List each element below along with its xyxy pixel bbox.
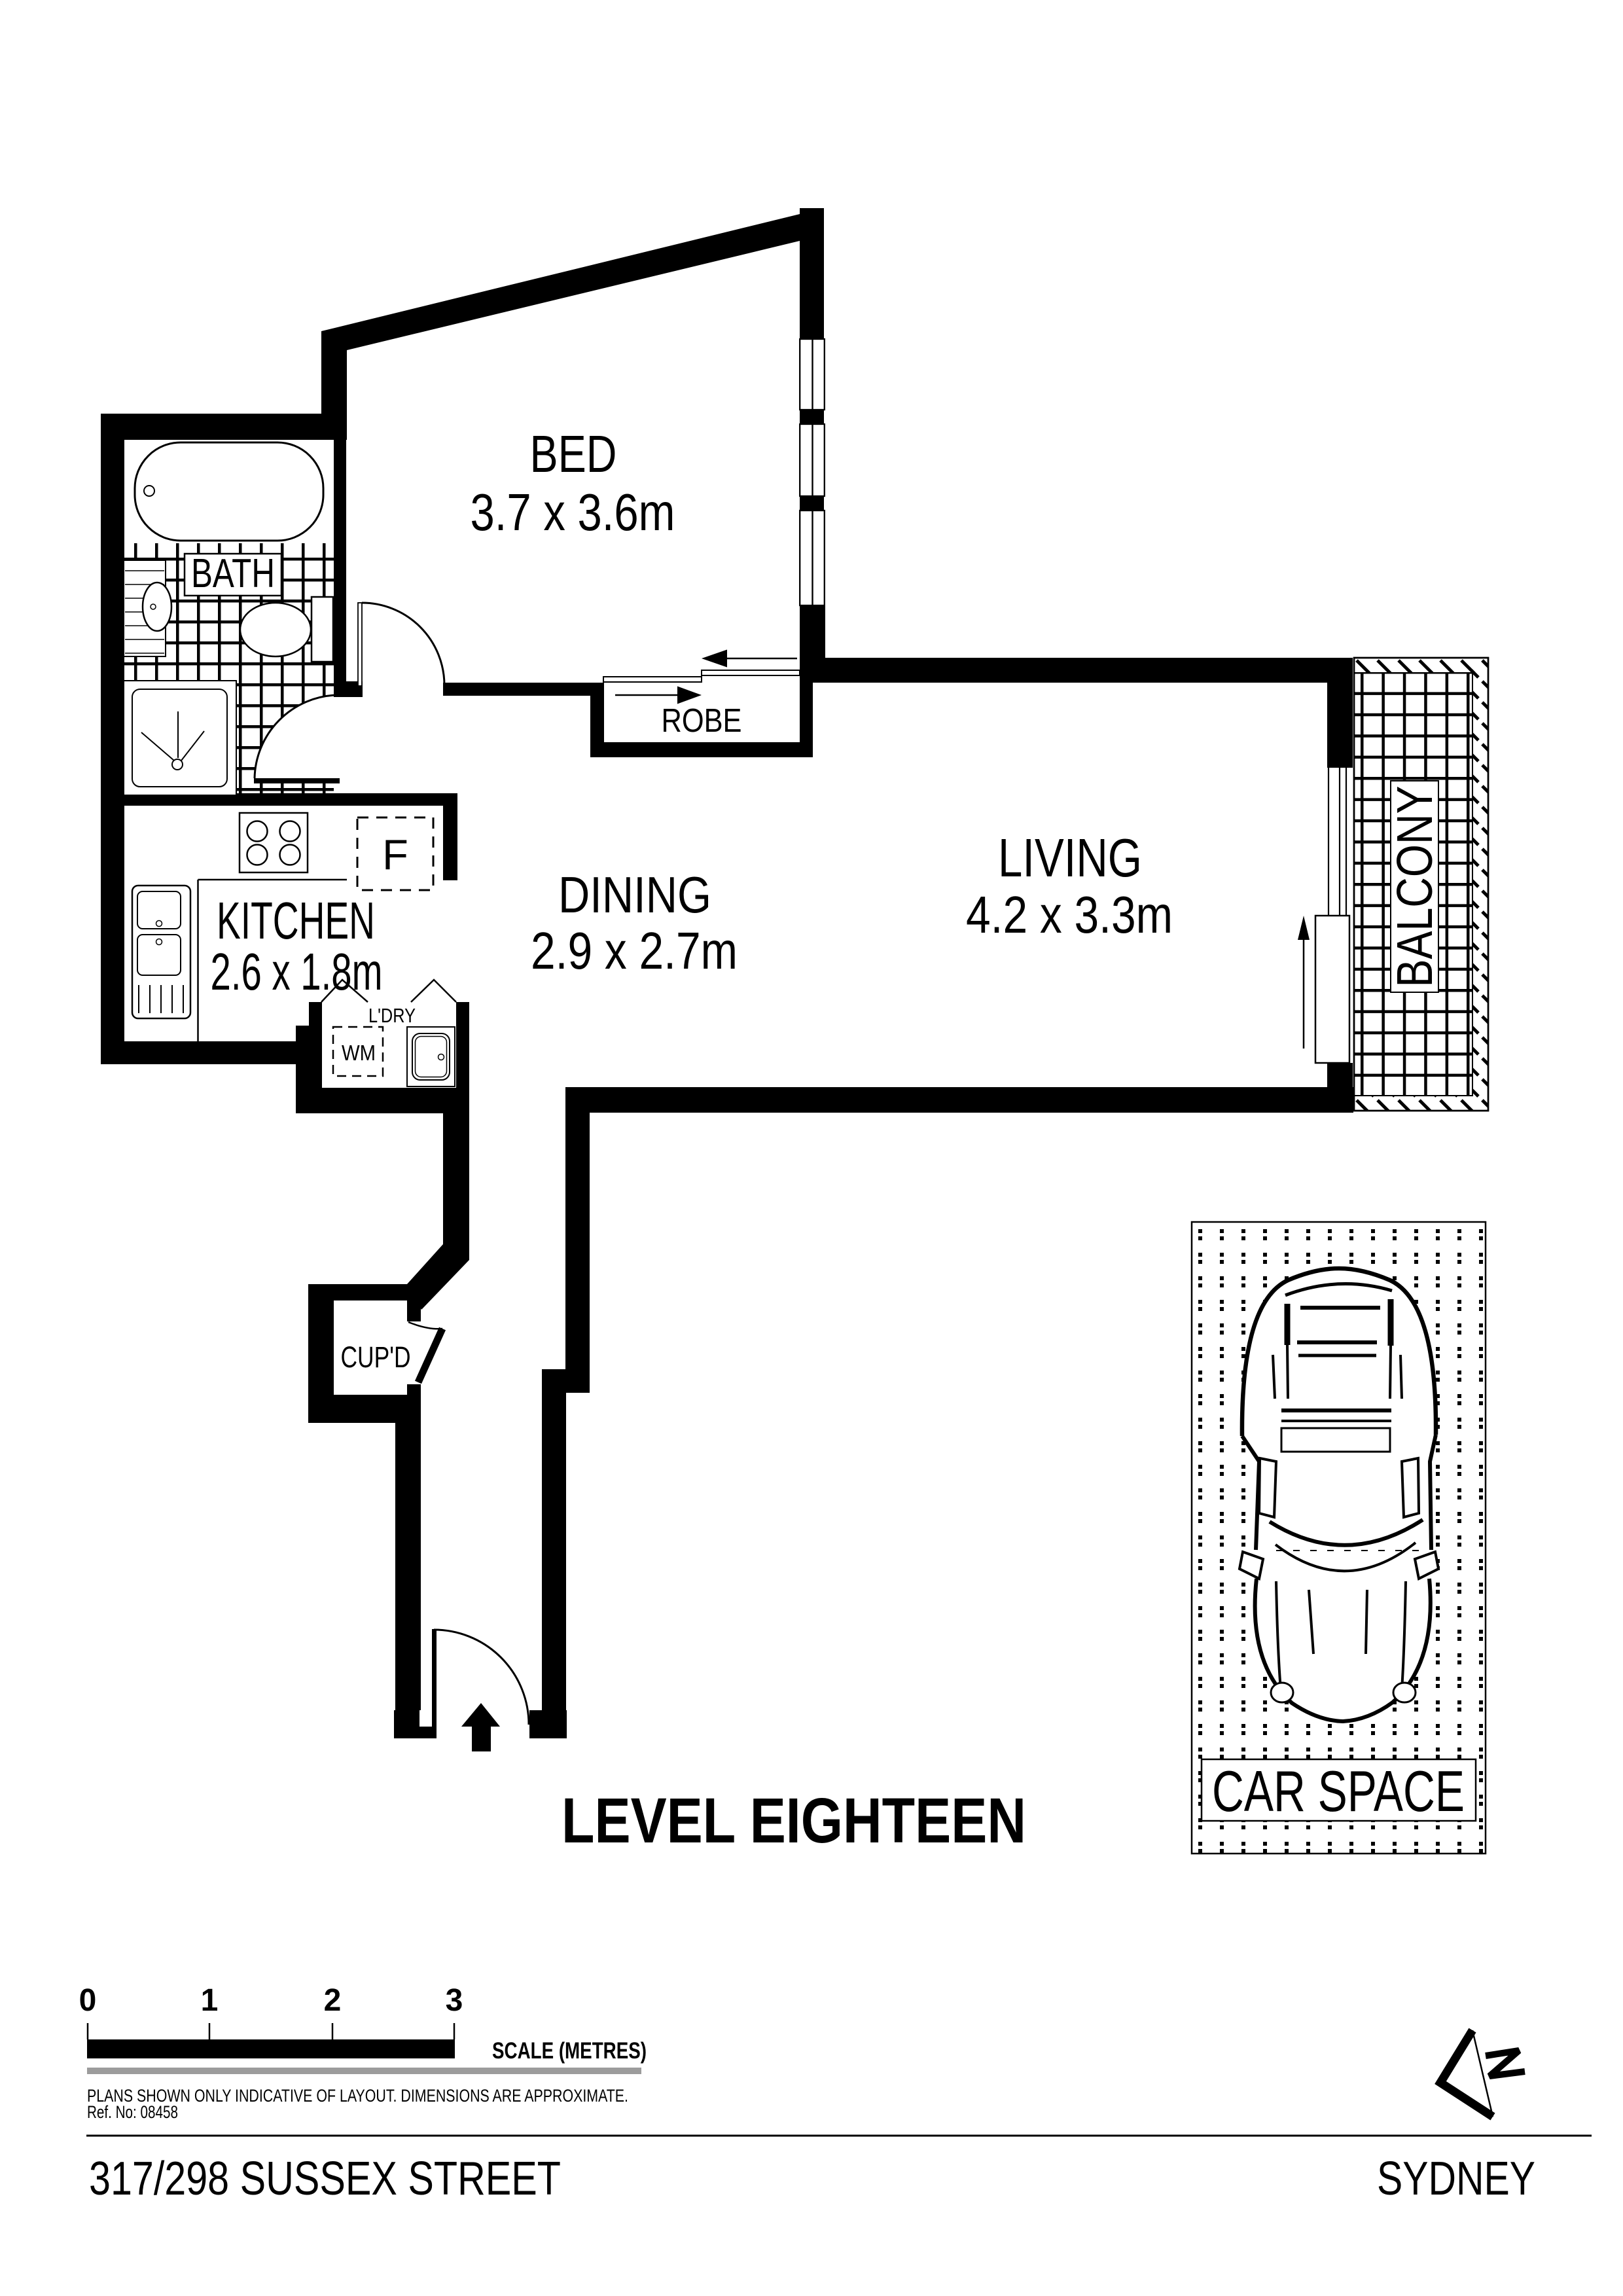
svg-text:2.6 x 1.8m: 2.6 x 1.8m: [211, 942, 383, 1001]
svg-text:2: 2: [324, 1983, 342, 2018]
svg-text:LIVING: LIVING: [998, 827, 1142, 888]
svg-text:F: F: [382, 831, 408, 878]
svg-text:SCALE (METRES): SCALE (METRES): [492, 2038, 647, 2064]
svg-text:3.7 x 3.6m: 3.7 x 3.6m: [471, 483, 675, 541]
svg-text:BATH: BATH: [191, 551, 275, 596]
svg-text:4.2 x 3.3m: 4.2 x 3.3m: [966, 886, 1173, 944]
svg-text:L'DRY: L'DRY: [368, 1004, 416, 1027]
svg-text:DINING: DINING: [558, 866, 711, 924]
svg-text:SYDNEY: SYDNEY: [1377, 2153, 1535, 2205]
svg-text:3: 3: [446, 1983, 463, 2018]
svg-text:BED: BED: [530, 425, 617, 483]
svg-text:2.9 x 2.7m: 2.9 x 2.7m: [531, 922, 738, 980]
svg-text:WM: WM: [342, 1041, 376, 1065]
svg-text:CAR SPACE: CAR SPACE: [1212, 1759, 1465, 1823]
svg-text:CUP'D: CUP'D: [341, 1340, 411, 1374]
svg-text:KITCHEN: KITCHEN: [217, 891, 375, 950]
svg-text:317/298 SUSSEX STREET: 317/298 SUSSEX STREET: [89, 2153, 561, 2205]
svg-text:0: 0: [79, 1983, 97, 2018]
svg-text:1: 1: [201, 1983, 219, 2018]
svg-text:Ref. No: 08458: Ref. No: 08458: [87, 2102, 178, 2122]
svg-text:ROBE: ROBE: [662, 702, 742, 739]
svg-text:BALCONY: BALCONY: [1387, 786, 1443, 988]
svg-text:LEVEL EIGHTEEN: LEVEL EIGHTEEN: [562, 1785, 1026, 1856]
